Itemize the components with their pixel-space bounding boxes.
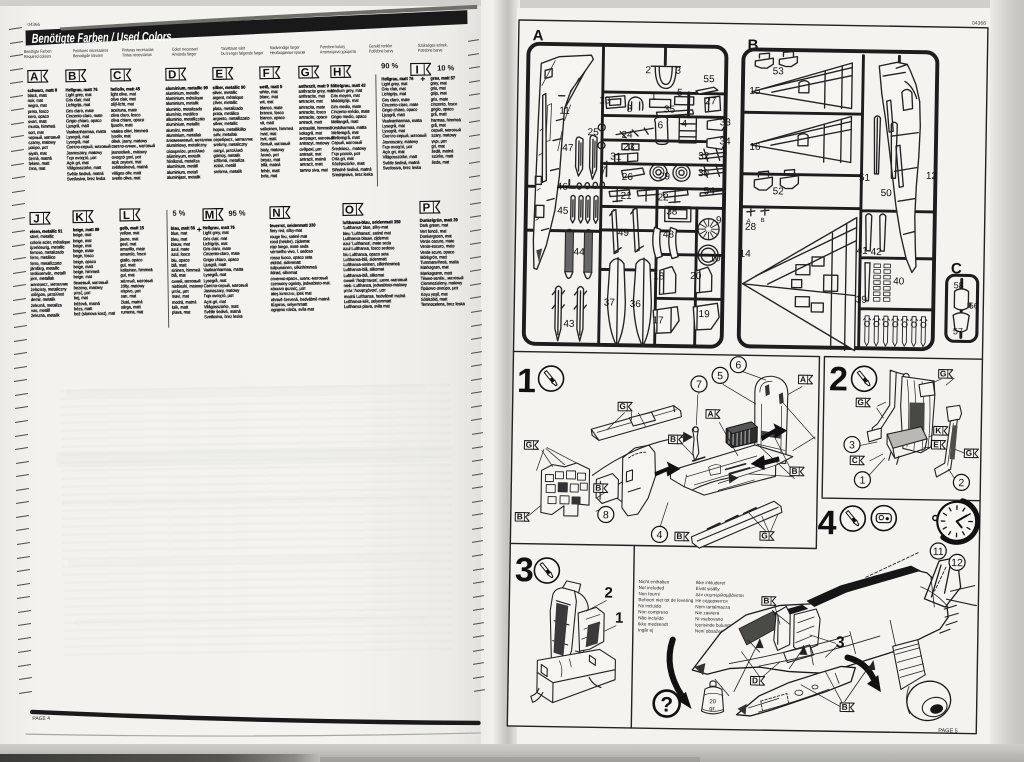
svg-text:3: 3 xyxy=(849,439,855,451)
svg-text:1: 1 xyxy=(615,610,624,627)
svg-text:51: 51 xyxy=(859,173,871,184)
svg-text:5: 5 xyxy=(717,370,723,382)
svg-text:B: B xyxy=(763,595,769,605)
svg-text:23: 23 xyxy=(623,142,635,153)
svg-text:A: A xyxy=(533,27,544,44)
svg-text:G: G xyxy=(966,448,973,458)
svg-text:6: 6 xyxy=(657,120,663,131)
svg-text:18: 18 xyxy=(653,271,665,282)
svg-text:1: 1 xyxy=(859,475,865,487)
svg-text:47: 47 xyxy=(562,143,574,154)
svg-text:13: 13 xyxy=(599,95,611,106)
svg-text:53: 53 xyxy=(773,66,785,77)
svg-text:3: 3 xyxy=(675,66,681,77)
svg-text:26: 26 xyxy=(622,172,634,183)
svg-text:1: 1 xyxy=(517,362,537,400)
svg-text:4: 4 xyxy=(817,504,837,542)
svg-text:44: 44 xyxy=(574,247,586,258)
svg-text:G: G xyxy=(526,439,533,449)
svg-text:Nem tartalmazza: Nem tartalmazza xyxy=(695,604,730,610)
svg-text:4: 4 xyxy=(681,119,687,130)
svg-text:43: 43 xyxy=(563,319,575,330)
svg-text:8: 8 xyxy=(603,509,609,521)
svg-text:Ikke inkluderet: Ikke inkluderet xyxy=(696,580,726,586)
svg-text:2: 2 xyxy=(645,65,651,76)
svg-text:55: 55 xyxy=(703,74,715,85)
svg-text:27: 27 xyxy=(705,96,717,107)
svg-text:8: 8 xyxy=(627,104,633,115)
svg-text:20: 20 xyxy=(709,698,716,705)
svg-text:58: 58 xyxy=(954,280,964,290)
svg-text:35: 35 xyxy=(664,104,676,115)
svg-text:4: 4 xyxy=(656,529,662,541)
svg-text:B: B xyxy=(676,531,682,541)
svg-text:29: 29 xyxy=(659,171,671,182)
svg-text:46: 46 xyxy=(557,182,569,193)
svg-text:B: B xyxy=(595,483,601,493)
svg-text:20: 20 xyxy=(690,271,702,282)
svg-text:11: 11 xyxy=(933,546,944,558)
svg-text:31: 31 xyxy=(610,152,622,163)
svg-text:1: 1 xyxy=(651,91,657,102)
svg-text:E: E xyxy=(933,439,939,449)
svg-text:PAGE 5: PAGE 5 xyxy=(938,728,958,734)
svg-text:36: 36 xyxy=(630,299,642,310)
svg-text:42: 42 xyxy=(871,247,883,258)
svg-text:Non fourni: Non fourni xyxy=(638,591,659,596)
svg-text:?: ? xyxy=(660,693,673,716)
svg-text:57: 57 xyxy=(953,326,963,336)
svg-text:5: 5 xyxy=(677,88,683,99)
svg-text:54: 54 xyxy=(704,186,716,197)
svg-text:34: 34 xyxy=(719,136,731,147)
svg-text:Nicht enthalten: Nicht enthalten xyxy=(639,579,670,585)
svg-text:25: 25 xyxy=(587,127,599,138)
svg-text:41: 41 xyxy=(857,246,869,257)
svg-text:52: 52 xyxy=(773,186,785,197)
svg-text:14: 14 xyxy=(739,249,751,260)
svg-text:39: 39 xyxy=(856,295,868,306)
svg-text:49: 49 xyxy=(618,228,630,239)
svg-text:15: 15 xyxy=(749,86,761,97)
svg-text:7: 7 xyxy=(696,379,702,391)
svg-text:gr.: gr. xyxy=(709,706,716,712)
svg-text:B: B xyxy=(761,217,765,224)
svg-text:11: 11 xyxy=(559,106,570,117)
svg-text:Nie zawiera: Nie zawiera xyxy=(695,610,720,615)
svg-text:Ingår ej: Ingår ej xyxy=(638,627,653,632)
svg-text:45: 45 xyxy=(557,206,569,217)
svg-text:7: 7 xyxy=(601,165,607,176)
svg-text:Ni vsebovano: Ni vsebovano xyxy=(695,616,723,621)
svg-text:3: 3 xyxy=(836,634,845,651)
svg-text:Δεν συμπεριλαμβάνεται: Δεν συμπεριλαμβάνεται xyxy=(695,592,743,598)
svg-text:22: 22 xyxy=(657,192,669,203)
svg-text:Behoort niet tot de levering: Behoort niet tot de levering xyxy=(638,597,693,603)
svg-text:A: A xyxy=(707,408,713,418)
svg-text:K: K xyxy=(935,425,941,435)
svg-text:B: B xyxy=(842,702,848,712)
svg-text:32: 32 xyxy=(698,151,710,162)
svg-text:No incluido: No incluido xyxy=(638,603,661,608)
svg-text:Not included: Not included xyxy=(639,585,665,590)
svg-text:28: 28 xyxy=(745,222,757,233)
svg-text:Не содержится: Не содержится xyxy=(695,598,728,604)
svg-text:Ikke medsendt: Ikke medsendt xyxy=(638,621,669,627)
svg-text:40: 40 xyxy=(893,276,905,287)
svg-text:A: A xyxy=(800,374,806,384)
svg-text:16: 16 xyxy=(749,142,761,153)
svg-text:2: 2 xyxy=(958,477,964,489)
svg-text:G: G xyxy=(619,401,626,411)
svg-text:50: 50 xyxy=(881,188,893,199)
svg-text:G: G xyxy=(857,397,864,407)
svg-text:48: 48 xyxy=(663,229,675,240)
svg-text:19: 19 xyxy=(698,309,710,320)
svg-text:2: 2 xyxy=(604,584,613,601)
svg-text:B: B xyxy=(791,466,797,476)
svg-text:33: 33 xyxy=(720,117,732,128)
svg-text:9: 9 xyxy=(716,215,722,226)
svg-text:C: C xyxy=(852,455,858,465)
svg-text:04366: 04366 xyxy=(972,21,986,27)
svg-text:B: B xyxy=(670,434,676,444)
svg-text:Não incluído: Não incluído xyxy=(638,615,664,620)
svg-text:G: G xyxy=(940,368,947,378)
svg-text:17: 17 xyxy=(652,315,664,326)
svg-text:2: 2 xyxy=(829,360,849,398)
svg-text:Non compreso: Non compreso xyxy=(638,609,668,615)
svg-text:30: 30 xyxy=(698,168,710,179)
svg-text:12: 12 xyxy=(951,557,963,569)
svg-text:B: B xyxy=(517,511,523,521)
svg-text:G: G xyxy=(761,530,768,540)
svg-text:Eivät sisälly: Eivät sisälly xyxy=(696,586,721,591)
svg-text:38: 38 xyxy=(666,206,678,217)
svg-text:21: 21 xyxy=(620,191,632,202)
svg-text:10: 10 xyxy=(709,253,721,264)
svg-text:24: 24 xyxy=(621,130,633,141)
svg-text:12: 12 xyxy=(926,171,938,182)
svg-text:37: 37 xyxy=(604,297,616,308)
svg-text:6: 6 xyxy=(735,359,741,371)
svg-text:D: D xyxy=(752,675,758,685)
svg-text:3: 3 xyxy=(515,551,535,589)
